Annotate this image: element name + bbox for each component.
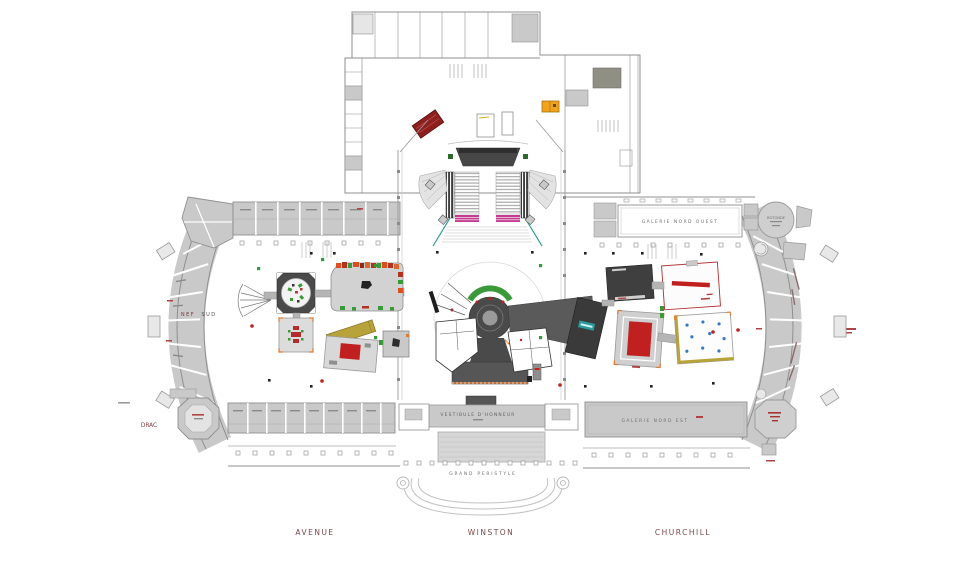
galerie-nord-est: GALERIE NORD EST	[583, 402, 750, 468]
seating-block-right	[496, 172, 520, 214]
stand-red-center-west	[324, 336, 379, 372]
south-west-wing	[148, 197, 233, 449]
west-hall-stands	[238, 262, 409, 372]
stand-red-center-east	[614, 310, 664, 369]
horseshoe-steps	[404, 478, 562, 515]
east-hall-stands	[565, 259, 740, 369]
galerie-nord-est-label: GALERIE NORD EST	[622, 418, 689, 424]
grand-peristyle-label: GRAND PERISTYLE	[449, 471, 516, 477]
north-east-wing: ROTONDE	[742, 202, 856, 462]
seating-block-left	[455, 172, 479, 214]
fan-structure	[238, 284, 271, 317]
rotonde-label: ROTONDE	[767, 216, 786, 220]
street-churchill-label: CHURCHILL	[655, 528, 711, 537]
nef-label: NEF	[181, 312, 195, 318]
drac-label: DRAC	[141, 423, 157, 429]
street-winston-label: WINSTON	[468, 528, 515, 537]
stand-dark-north	[606, 264, 654, 301]
stand-dark-circle	[277, 273, 315, 313]
sud-label: SUD	[201, 312, 216, 318]
service-box-yellow	[542, 101, 559, 112]
stand-blue-dots	[674, 312, 733, 364]
stand-small-west	[379, 331, 409, 357]
vestibule-label: VESTIBULE D'HONNEUR	[440, 412, 515, 418]
south-west-lower-band	[228, 403, 400, 466]
stand-white-redbar	[661, 259, 720, 310]
stand-ornament	[279, 318, 313, 352]
stand-garden	[331, 262, 403, 311]
magenta-rows-left	[455, 215, 479, 222]
galerie-nord-ouest: GALERIE NORD OUEST	[565, 197, 755, 259]
floor-plan-drawing: ROTONDE	[0, 0, 969, 570]
galerie-nord-ouest-label: GALERIE NORD OUEST	[642, 219, 719, 225]
street-avenue-label: AVENUE	[295, 528, 334, 537]
south-gallery-band	[233, 202, 400, 258]
floor-plan-canvas: ROTONDE	[0, 0, 969, 570]
vestibule-peristyle: VESTIBULE D'HONNEUR GRAND PERISTYLE	[397, 396, 578, 515]
magenta-rows-right	[496, 215, 520, 222]
